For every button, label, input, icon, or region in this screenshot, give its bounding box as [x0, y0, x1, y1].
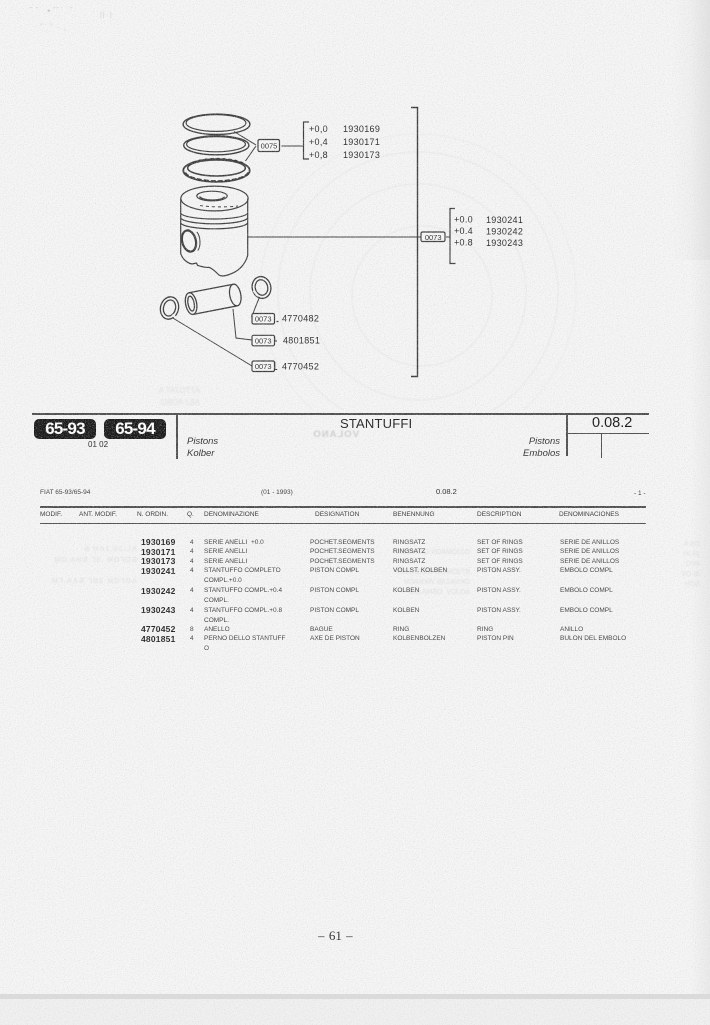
svg-text:0073: 0073: [255, 362, 272, 371]
svg-text:4770482: 4770482: [282, 314, 319, 324]
svg-text:+0,8: +0,8: [309, 150, 328, 160]
svg-text:1930171: 1930171: [343, 137, 380, 147]
svg-text:+0.0: +0.0: [454, 215, 473, 225]
svg-text:1930173: 1930173: [343, 150, 380, 160]
svg-text:4770452: 4770452: [282, 362, 319, 372]
svg-text:1930169: 1930169: [343, 124, 380, 134]
svg-text:0073: 0073: [425, 233, 442, 242]
svg-text:1930243: 1930243: [486, 238, 523, 248]
svg-text:+0.8: +0.8: [454, 238, 473, 248]
svg-text:+0,4: +0,4: [309, 137, 328, 147]
svg-text:0073: 0073: [255, 336, 272, 345]
svg-text:1930241: 1930241: [486, 215, 523, 225]
svg-text:0075: 0075: [261, 141, 278, 150]
svg-text:4801851: 4801851: [283, 336, 320, 346]
svg-text:0073: 0073: [255, 314, 272, 323]
svg-text:+0,0: +0,0: [309, 124, 328, 134]
svg-text:1930242: 1930242: [486, 227, 523, 237]
svg-text:+0.4: +0.4: [454, 226, 473, 236]
